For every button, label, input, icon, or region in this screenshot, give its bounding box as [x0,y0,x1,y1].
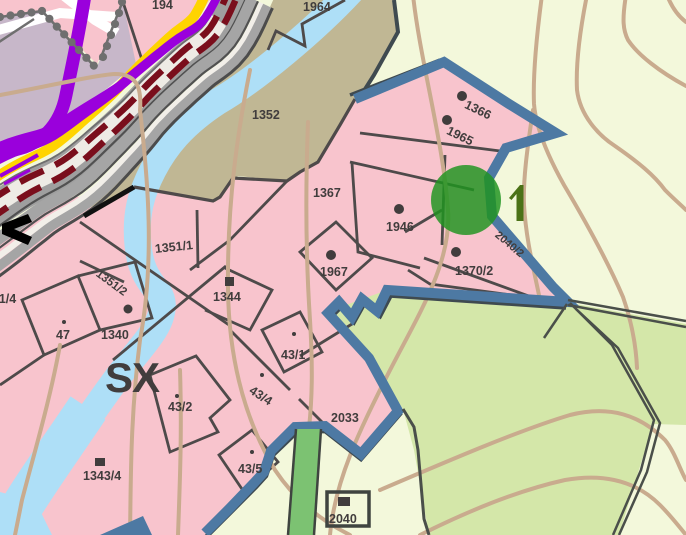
svg-text:2033: 2033 [331,411,359,425]
svg-text:1343/4: 1343/4 [83,469,121,483]
svg-text:1351/4: 1351/4 [0,292,16,306]
svg-text:43/1: 43/1 [281,348,305,362]
svg-text:47: 47 [56,328,70,342]
svg-text:1967: 1967 [320,265,348,279]
svg-text:194: 194 [152,0,173,12]
svg-text:1946: 1946 [386,220,414,234]
svg-text:SX: SX [105,354,160,401]
svg-text:1370/2: 1370/2 [455,264,493,278]
svg-text:43/2: 43/2 [168,400,192,414]
svg-text:1340: 1340 [101,328,129,342]
svg-text:43/5: 43/5 [238,462,262,476]
svg-text:1344: 1344 [213,290,241,304]
svg-text:1352: 1352 [252,108,280,122]
svg-text:2040: 2040 [329,512,357,526]
svg-text:1367: 1367 [313,186,341,200]
svg-text:1964: 1964 [303,0,331,14]
